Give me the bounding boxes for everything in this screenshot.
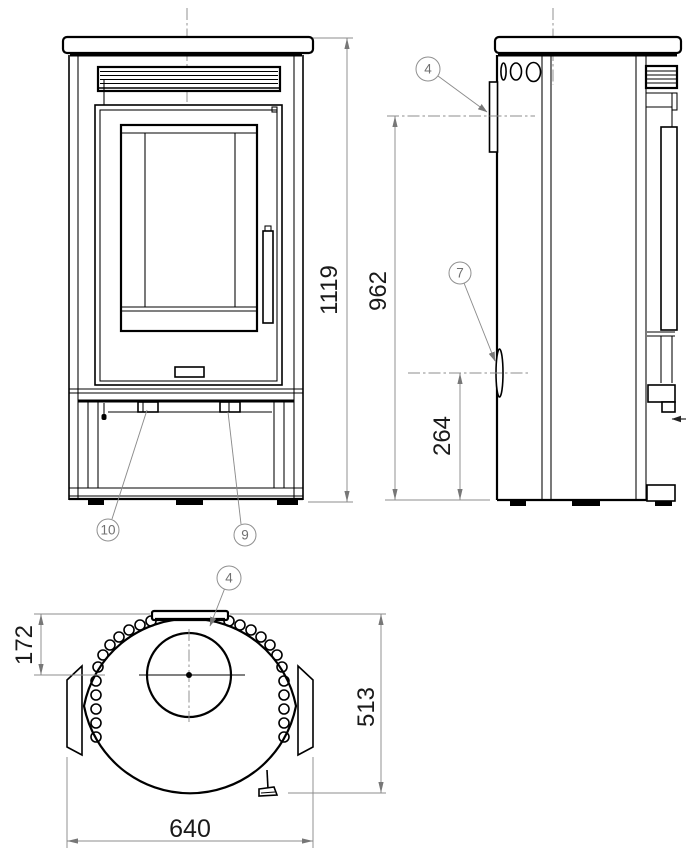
drawing-canvas: 1119 10 9 [0,0,700,859]
top-plate-front [63,37,313,53]
callout-flue-outlet-top-number: 4 [225,571,233,586]
side-panel-right [298,666,313,755]
callout-flue-outlet-side: 4 [416,57,487,112]
top-plate-side [495,37,681,53]
ash-lever [175,367,204,377]
dim-rear-inlet-height-label: 264 [429,416,456,456]
side-view: 962 264 4 7 [365,8,686,506]
handle-top-view [259,770,277,796]
door-hinge-detail-bottom [102,403,107,420]
flue-collar-side [490,82,498,152]
dim-flue-offset-label: 172 [11,625,38,665]
side-door-lower [647,332,675,412]
flue-center-point [186,672,192,678]
callout-rear-air-inlet: 7 [449,262,495,361]
top-cap [152,611,228,620]
side-door-glass-profile [661,127,677,330]
door-handle [263,226,273,323]
dim-overall-depth-label: 513 [353,687,380,727]
dim-overall-width-label: 640 [169,815,211,843]
callout-latch-left-number: 10 [100,523,115,538]
front-view: 1119 10 9 [63,8,353,546]
callout-latch-right: 9 [228,412,256,546]
side-body [497,55,677,500]
front-feet [88,500,298,505]
callout-flue-outlet-side-number: 4 [424,62,432,77]
dim-flue-outlet-height-label: 962 [365,271,392,311]
latch-left [138,402,158,412]
door-glass-frame [121,125,257,331]
dim-rear-inlet-height: 264 [408,373,530,500]
vent-grille [98,67,280,91]
callout-latch-right-number: 9 [241,528,249,543]
rear-oval-openings [501,63,541,82]
callout-latch-left: 10 [97,410,147,541]
callout-rear-air-inlet-number: 7 [456,266,464,281]
stove-drawing: 1119 10 9 [0,0,700,859]
side-panel-left [67,666,82,755]
dim-overall-height-label: 1119 [316,265,343,315]
dim-overall-height: 1119 [308,38,353,502]
side-front-step [646,93,677,127]
side-base-step [647,485,675,501]
top-view: 172 513 640 4 [11,566,386,848]
latch-right [220,402,240,412]
side-louver-block [646,66,677,88]
